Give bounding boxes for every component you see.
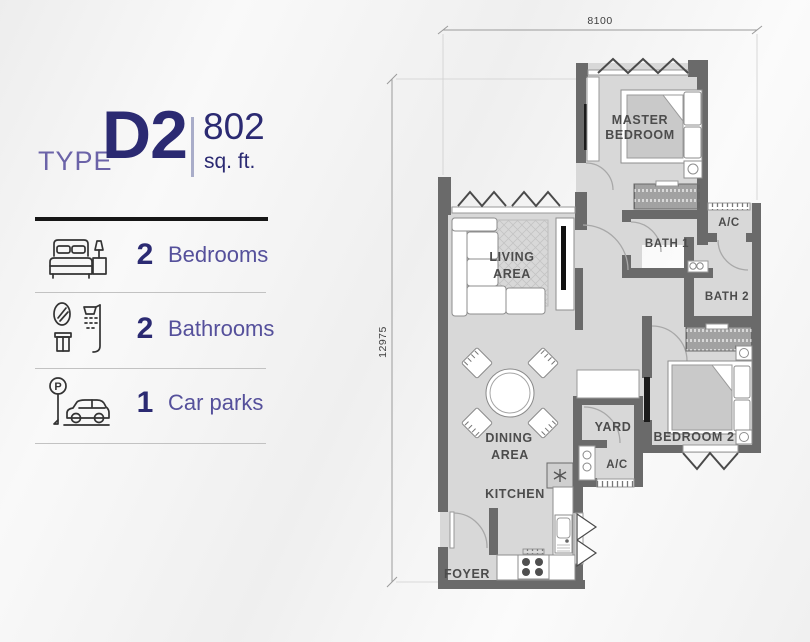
label-dining-area: DINING	[485, 431, 532, 445]
dimension-height: 12975	[377, 326, 389, 358]
label-ac-lower: A/C	[606, 459, 628, 471]
bedroom2-window-zigzag	[683, 453, 738, 469]
label-ac-upper: A/C	[718, 217, 740, 229]
label-bedroom-2: BEDROOM 2	[653, 430, 734, 444]
floor-plan: 8100 12975	[0, 0, 810, 642]
label-living-area: LIVING	[489, 250, 534, 264]
kitchen-sink	[555, 515, 572, 553]
yard-void	[577, 370, 639, 398]
label-living-area: AREA	[493, 267, 531, 281]
bedroom2-bed	[668, 361, 752, 434]
living-window-zigzag	[458, 192, 506, 206]
ac-lower-louvre	[597, 479, 634, 487]
bath1-sink	[688, 261, 708, 272]
tv-console	[556, 218, 574, 310]
dining-table	[486, 369, 534, 417]
master-side-table	[684, 161, 702, 178]
sliding-door-bedroom2	[644, 377, 650, 422]
living-window-zigzag	[512, 192, 560, 206]
label-master-bedroom: BEDROOM	[605, 128, 674, 142]
tv	[561, 226, 566, 290]
label-master-bedroom: MASTER	[612, 113, 668, 127]
master-ledge	[587, 77, 599, 161]
label-yard: YARD	[595, 420, 632, 434]
stove	[518, 549, 549, 579]
master-wardrobe	[634, 181, 700, 209]
label-bath-2: BATH 2	[705, 291, 749, 303]
ac-upper-louvre	[708, 203, 750, 210]
label-bath-1: BATH 1	[645, 238, 689, 250]
label-kitchen: KITCHEN	[485, 487, 545, 501]
dimension-width: 8100	[587, 15, 612, 27]
label-dining-area: AREA	[491, 448, 529, 462]
label-foyer: FOYER	[444, 567, 490, 581]
yard-washer	[579, 446, 595, 480]
kitchen-washer-box	[547, 463, 573, 488]
entry-door-leaf	[450, 512, 454, 548]
